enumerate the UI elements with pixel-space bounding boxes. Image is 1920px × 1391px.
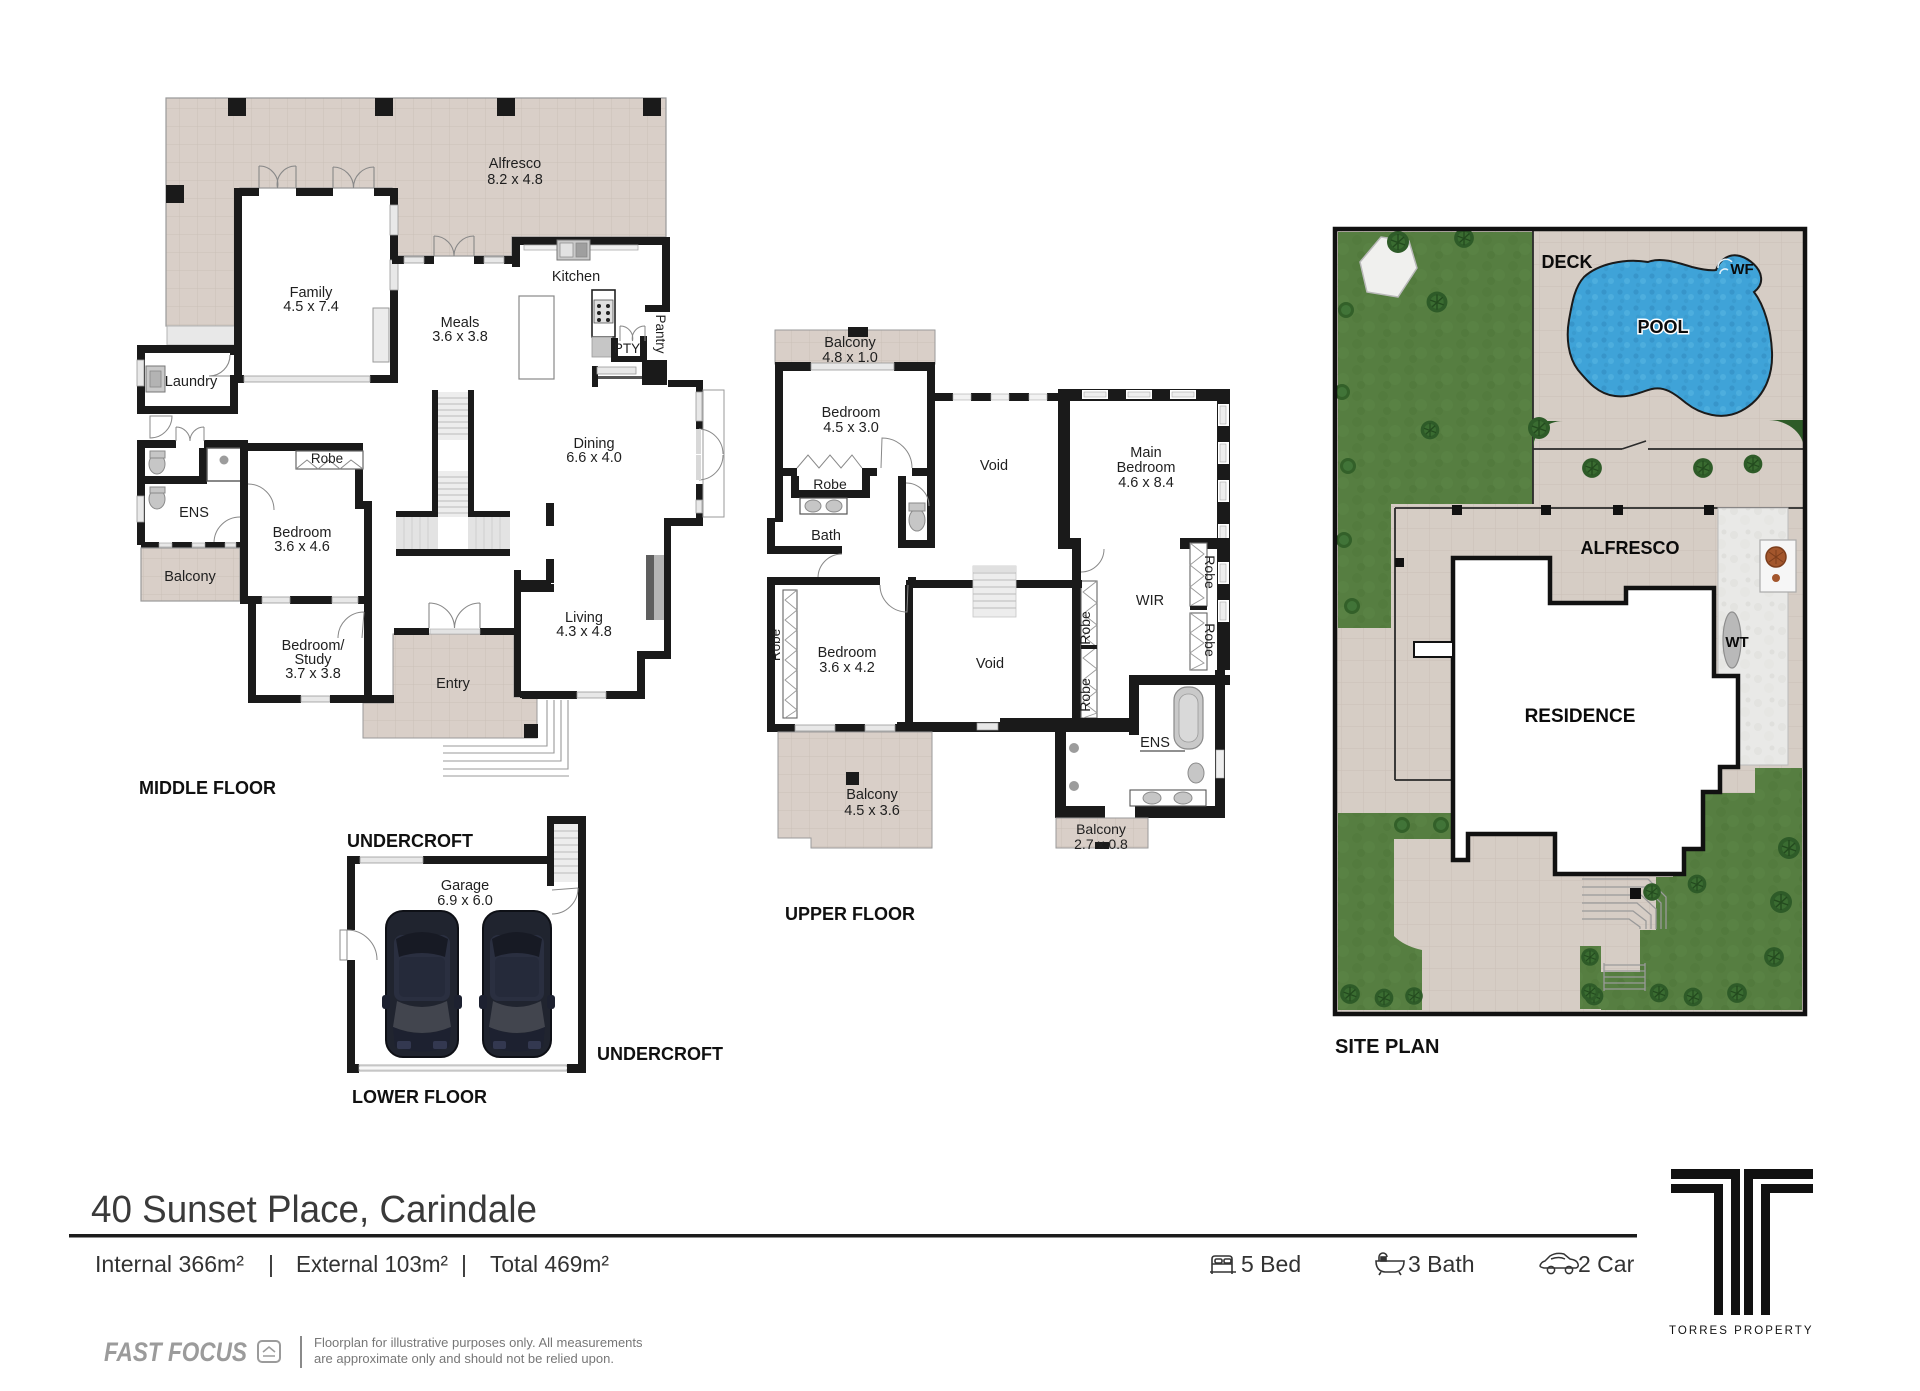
svg-text:5 Bed: 5 Bed	[1241, 1251, 1301, 1277]
svg-text:FAST FOCUS: FAST FOCUS	[104, 1337, 247, 1367]
svg-text:LOWER FLOOR: LOWER FLOOR	[352, 1087, 487, 1107]
svg-text:SITE PLAN: SITE PLAN	[1335, 1036, 1439, 1058]
svg-text:are approximate only and shoul: are approximate only and should not be r…	[314, 1351, 614, 1366]
svg-text:3.7 x 3.8: 3.7 x 3.8	[285, 666, 341, 682]
svg-text:Bedroom: Bedroom	[1117, 460, 1176, 476]
svg-text:WF: WF	[1730, 261, 1753, 278]
svg-text:PTY: PTY	[614, 341, 640, 356]
svg-text:ENS: ENS	[1140, 735, 1170, 751]
svg-text:Floorplan for illustrative pur: Floorplan for illustrative purposes only…	[314, 1335, 643, 1350]
svg-text:6.6 x 4.0: 6.6 x 4.0	[566, 450, 622, 466]
svg-text:Bath: Bath	[811, 528, 841, 544]
svg-text:Main: Main	[1130, 445, 1161, 461]
svg-text:3.6 x 3.8: 3.6 x 3.8	[432, 329, 488, 345]
svg-text:Kitchen: Kitchen	[552, 269, 600, 285]
svg-text:Void: Void	[976, 656, 1004, 672]
svg-text:Bedroom: Bedroom	[818, 645, 877, 661]
svg-text:|: |	[268, 1251, 274, 1277]
svg-text:Robe: Robe	[1202, 623, 1218, 657]
svg-text:Robe: Robe	[768, 629, 783, 661]
svg-text:UNDERCROFT: UNDERCROFT	[347, 831, 473, 851]
svg-text:4.5 x 3.0: 4.5 x 3.0	[823, 420, 879, 436]
svg-text:4.5 x 3.6: 4.5 x 3.6	[844, 803, 900, 819]
svg-text:3 Bath: 3 Bath	[1408, 1251, 1475, 1277]
svg-text:Total 469m²: Total 469m²	[490, 1251, 609, 1277]
svg-text:Alfresco: Alfresco	[489, 156, 541, 172]
svg-text:WT: WT	[1725, 634, 1748, 651]
svg-text:Void: Void	[980, 458, 1008, 474]
svg-text:MIDDLE FLOOR: MIDDLE FLOOR	[139, 778, 276, 798]
svg-text:4.5 x 7.4: 4.5 x 7.4	[283, 299, 339, 315]
svg-text:TORRES PROPERTY: TORRES PROPERTY	[1669, 1325, 1815, 1337]
svg-text:ENS: ENS	[179, 505, 209, 521]
svg-text:Robe: Robe	[1202, 555, 1218, 589]
svg-text:ALFRESCO: ALFRESCO	[1581, 538, 1680, 558]
svg-text:RESIDENCE: RESIDENCE	[1525, 706, 1636, 727]
svg-text:Balcony: Balcony	[164, 569, 216, 585]
svg-text:2.7 x 0.8: 2.7 x 0.8	[1074, 836, 1128, 852]
svg-text:Balcony: Balcony	[1076, 821, 1126, 837]
svg-text:Robe: Robe	[1077, 678, 1093, 712]
svg-text:Pantry: Pantry	[653, 314, 668, 353]
svg-text:Balcony: Balcony	[824, 335, 876, 351]
svg-text:3.6 x 4.2: 3.6 x 4.2	[819, 660, 875, 676]
svg-text:6.9 x 6.0: 6.9 x 6.0	[437, 893, 493, 909]
svg-text:Balcony: Balcony	[846, 787, 898, 803]
svg-text:Garage: Garage	[441, 878, 489, 894]
svg-text:UNDERCROFT: UNDERCROFT	[597, 1044, 723, 1064]
svg-text:40 Sunset Place, Carindale: 40 Sunset Place, Carindale	[91, 1189, 537, 1231]
svg-text:POOL: POOL	[1637, 317, 1688, 337]
svg-text:Laundry: Laundry	[165, 374, 218, 390]
svg-text:4.6 x 8.4: 4.6 x 8.4	[1118, 475, 1174, 491]
svg-text:Robe: Robe	[813, 476, 847, 492]
svg-text:Internal 366m²: Internal 366m²	[95, 1251, 244, 1277]
svg-text:DECK: DECK	[1541, 252, 1592, 272]
svg-text:UPPER FLOOR: UPPER FLOOR	[785, 904, 915, 924]
svg-text:Entry: Entry	[436, 676, 471, 692]
svg-text:3.6 x 4.6: 3.6 x 4.6	[274, 539, 330, 555]
svg-text:External 103m²: External 103m²	[296, 1251, 448, 1277]
svg-text:WIR: WIR	[1136, 593, 1164, 609]
svg-text:8.2 x 4.8: 8.2 x 4.8	[487, 172, 543, 188]
svg-text:Robe: Robe	[311, 451, 343, 466]
svg-text:4.3 x 4.8: 4.3 x 4.8	[556, 624, 612, 640]
svg-text:|: |	[461, 1251, 467, 1277]
svg-text:2 Car: 2 Car	[1578, 1251, 1635, 1277]
svg-text:Robe: Robe	[1077, 611, 1093, 645]
svg-text:Bedroom: Bedroom	[822, 405, 881, 421]
